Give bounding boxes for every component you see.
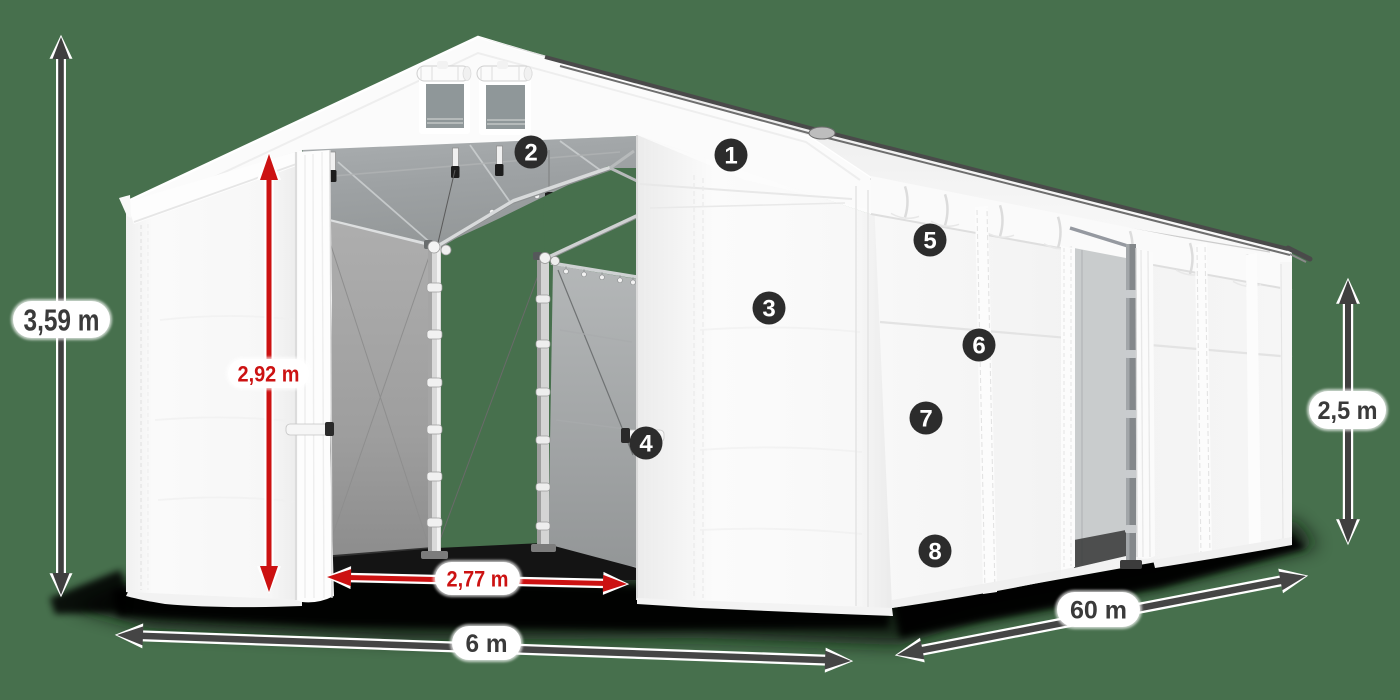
svg-text:3,59 m: 3,59 m — [24, 303, 100, 338]
svg-text:2,92 m: 2,92 m — [238, 361, 300, 386]
svg-text:7: 7 — [919, 406, 932, 433]
svg-text:2,5 m: 2,5 m — [1318, 397, 1378, 425]
svg-text:4: 4 — [639, 431, 653, 458]
svg-text:2: 2 — [524, 140, 537, 167]
svg-text:8: 8 — [928, 539, 941, 566]
svg-text:60 m: 60 m — [1070, 596, 1127, 624]
svg-text:1: 1 — [724, 143, 737, 170]
svg-text:3: 3 — [762, 296, 775, 323]
svg-text:5: 5 — [923, 228, 936, 255]
svg-text:2,77 m: 2,77 m — [447, 566, 509, 591]
svg-text:6: 6 — [972, 333, 985, 360]
svg-text:6 m: 6 m — [466, 630, 508, 658]
